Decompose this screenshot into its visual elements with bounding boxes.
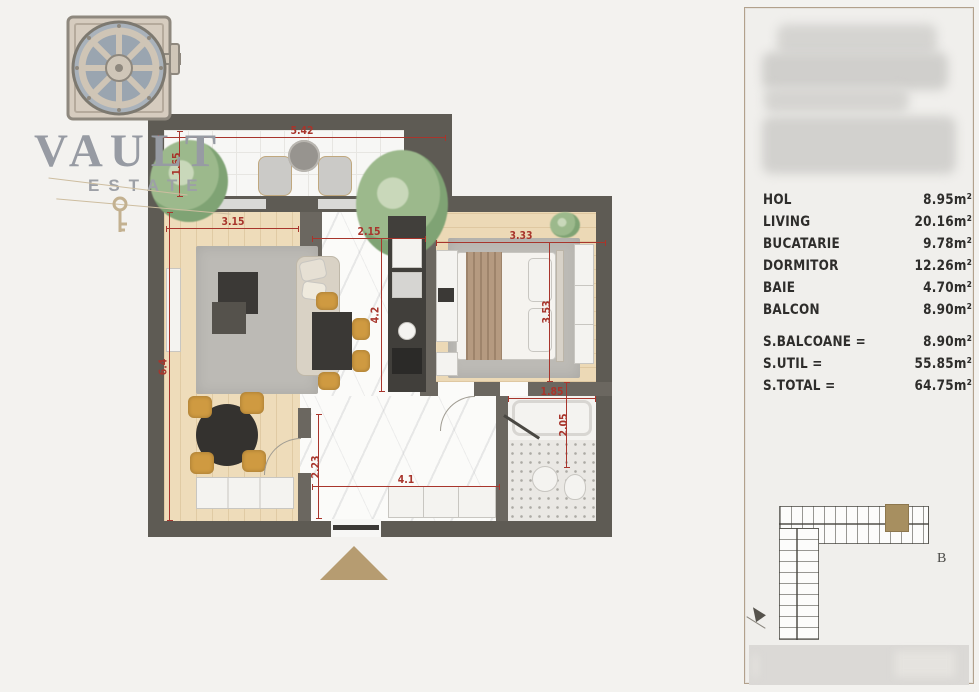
- dim-label: 1.85: [540, 385, 563, 398]
- key-icon: [108, 196, 132, 236]
- bathroom-sink: [532, 466, 558, 492]
- site-unit-highlight: [885, 504, 909, 532]
- entrance-marker-triangle: [320, 546, 388, 580]
- entrance-door-leaf: [333, 525, 379, 530]
- dim-kitchen-depth: 4.2: [381, 238, 382, 392]
- kitchen-chair-4: [318, 372, 340, 390]
- logo-flourish-line-2: [56, 198, 230, 214]
- brand-subtitle: ESTATE: [88, 176, 207, 196]
- room-area-value: 8.90m²: [923, 299, 972, 321]
- dim-living-depth: 6.4: [169, 212, 170, 521]
- total-value: 8.90m²: [923, 331, 972, 353]
- kitchen-hob: [392, 348, 422, 374]
- room-row-balcon: BALCON 8.90m²: [763, 299, 972, 321]
- living-wardrobe: [196, 477, 294, 509]
- watermark-ghost-mark: [753, 655, 758, 677]
- dim-kitchen-width: 2.15: [312, 238, 426, 239]
- room-label: BAIE: [763, 277, 795, 299]
- desk-laptop: [438, 288, 454, 302]
- vault-door-icon: [52, 14, 182, 130]
- dim-label: 6.4: [156, 358, 169, 375]
- dining-chair-4: [242, 450, 266, 472]
- right-wall: [596, 196, 612, 537]
- dining-chair-2: [240, 392, 264, 414]
- kitchen-chair-3: [352, 350, 370, 372]
- page: 5.42 1.65 3.15 6.4 2.15 4.2 3.33 3.53 4.…: [0, 0, 979, 692]
- room-label: BUCATARIE: [763, 233, 840, 255]
- redacted-header-block-3: [764, 87, 909, 113]
- total-row-util: S.UTIL = 55.85m²: [763, 353, 972, 375]
- dim-label: 2.23: [309, 455, 322, 478]
- total-value: 55.85m²: [915, 353, 973, 375]
- kitchen-table: [312, 312, 352, 370]
- bedroom-door-opening: [438, 382, 474, 396]
- total-row-balcoane: S.BALCOANE = 8.90m²: [763, 331, 972, 353]
- bed-blanket: [466, 252, 502, 360]
- room-row-hol: HOL 8.95m²: [763, 189, 972, 211]
- kitchen-chair-1: [316, 292, 338, 310]
- balcony-armchair-right: [318, 156, 352, 196]
- dim-hall-depth: 2.23: [318, 414, 319, 519]
- brand-logo: VAULT ESTATE: [0, 0, 260, 250]
- bedroom-plant: [550, 212, 580, 238]
- dim-label: 4.2: [368, 307, 381, 324]
- brand-name: VAULT: [34, 124, 223, 178]
- watermark-ghost-text: [895, 651, 955, 677]
- hall-living-partition-upper: [298, 408, 311, 438]
- site-plan: B: [745, 488, 973, 643]
- bathroom-door-opening: [500, 382, 528, 396]
- dim-bath-width: 1.85: [508, 398, 596, 399]
- dim-label: 3.53: [540, 300, 553, 323]
- room-label: BALCON: [763, 299, 820, 321]
- redacted-header-block-4: [762, 116, 956, 174]
- hall-wardrobe: [388, 486, 496, 518]
- dim-hall-width: 4.1: [312, 486, 500, 487]
- room-area-list: HOL 8.95m² LIVING 20.16m² BUCATARIE 9.78…: [763, 189, 972, 321]
- dim-label: 2.05: [557, 413, 570, 436]
- total-label: S.UTIL =: [763, 353, 823, 375]
- balcony-armchair-left: [258, 156, 292, 196]
- total-row-total: S.TOTAL = 64.75m²: [763, 375, 972, 397]
- room-area-value: 9.78m²: [923, 233, 972, 255]
- room-area-value: 20.16m²: [915, 211, 973, 233]
- room-area-value: 4.70m²: [923, 277, 972, 299]
- dim-label: 2.15: [357, 225, 380, 238]
- side-table: [212, 302, 246, 334]
- room-label: LIVING: [763, 211, 810, 233]
- total-value: 64.75m²: [915, 375, 973, 397]
- room-area-value: 8.95m²: [923, 189, 972, 211]
- bedroom-wardrobe: [574, 244, 594, 364]
- site-building-wing-vertical: [779, 528, 819, 640]
- dim-bath-depth: 2.05: [566, 382, 567, 468]
- room-area-value: 12.26m²: [915, 255, 973, 277]
- dim-bedroom-width: 3.33: [436, 242, 606, 243]
- kitchen-sink: [398, 322, 416, 340]
- dim-label: 3.33: [509, 229, 532, 242]
- room-label: HOL: [763, 189, 792, 211]
- redacted-header-block-2: [762, 52, 948, 90]
- dim-label: 4.1: [398, 473, 415, 486]
- headboard: [556, 250, 564, 362]
- hall-living-partition-lower: [298, 473, 311, 521]
- site-block-label: B: [937, 551, 946, 567]
- toilet: [564, 474, 586, 500]
- info-panel: HOL 8.95m² LIVING 20.16m² BUCATARIE 9.78…: [744, 7, 974, 684]
- room-label: DORMITOR: [763, 255, 839, 277]
- dim-bedroom-depth: 3.53: [549, 242, 550, 382]
- total-label: S.TOTAL =: [763, 375, 835, 397]
- totals-list: S.BALCOANE = 8.90m² S.UTIL = 55.85m² S.T…: [763, 331, 972, 397]
- dining-chair-1: [188, 396, 212, 418]
- room-row-bucatarie: BUCATARIE 9.78m²: [763, 233, 972, 255]
- room-row-baie: BAIE 4.70m²: [763, 277, 972, 299]
- total-label: S.BALCOANE =: [763, 331, 866, 353]
- balcony-table: [288, 140, 320, 172]
- dim-label: 5.42: [290, 124, 313, 137]
- bottom-watermark-bar: [749, 645, 969, 685]
- room-row-dormitor: DORMITOR 12.26m²: [763, 255, 972, 277]
- dining-chair-3: [190, 452, 214, 474]
- kitchen-cabinet: [392, 272, 422, 298]
- kitchen-fridge: [392, 238, 422, 268]
- room-row-living: LIVING 20.16m²: [763, 211, 972, 233]
- bedroom-nightstand: [436, 352, 458, 376]
